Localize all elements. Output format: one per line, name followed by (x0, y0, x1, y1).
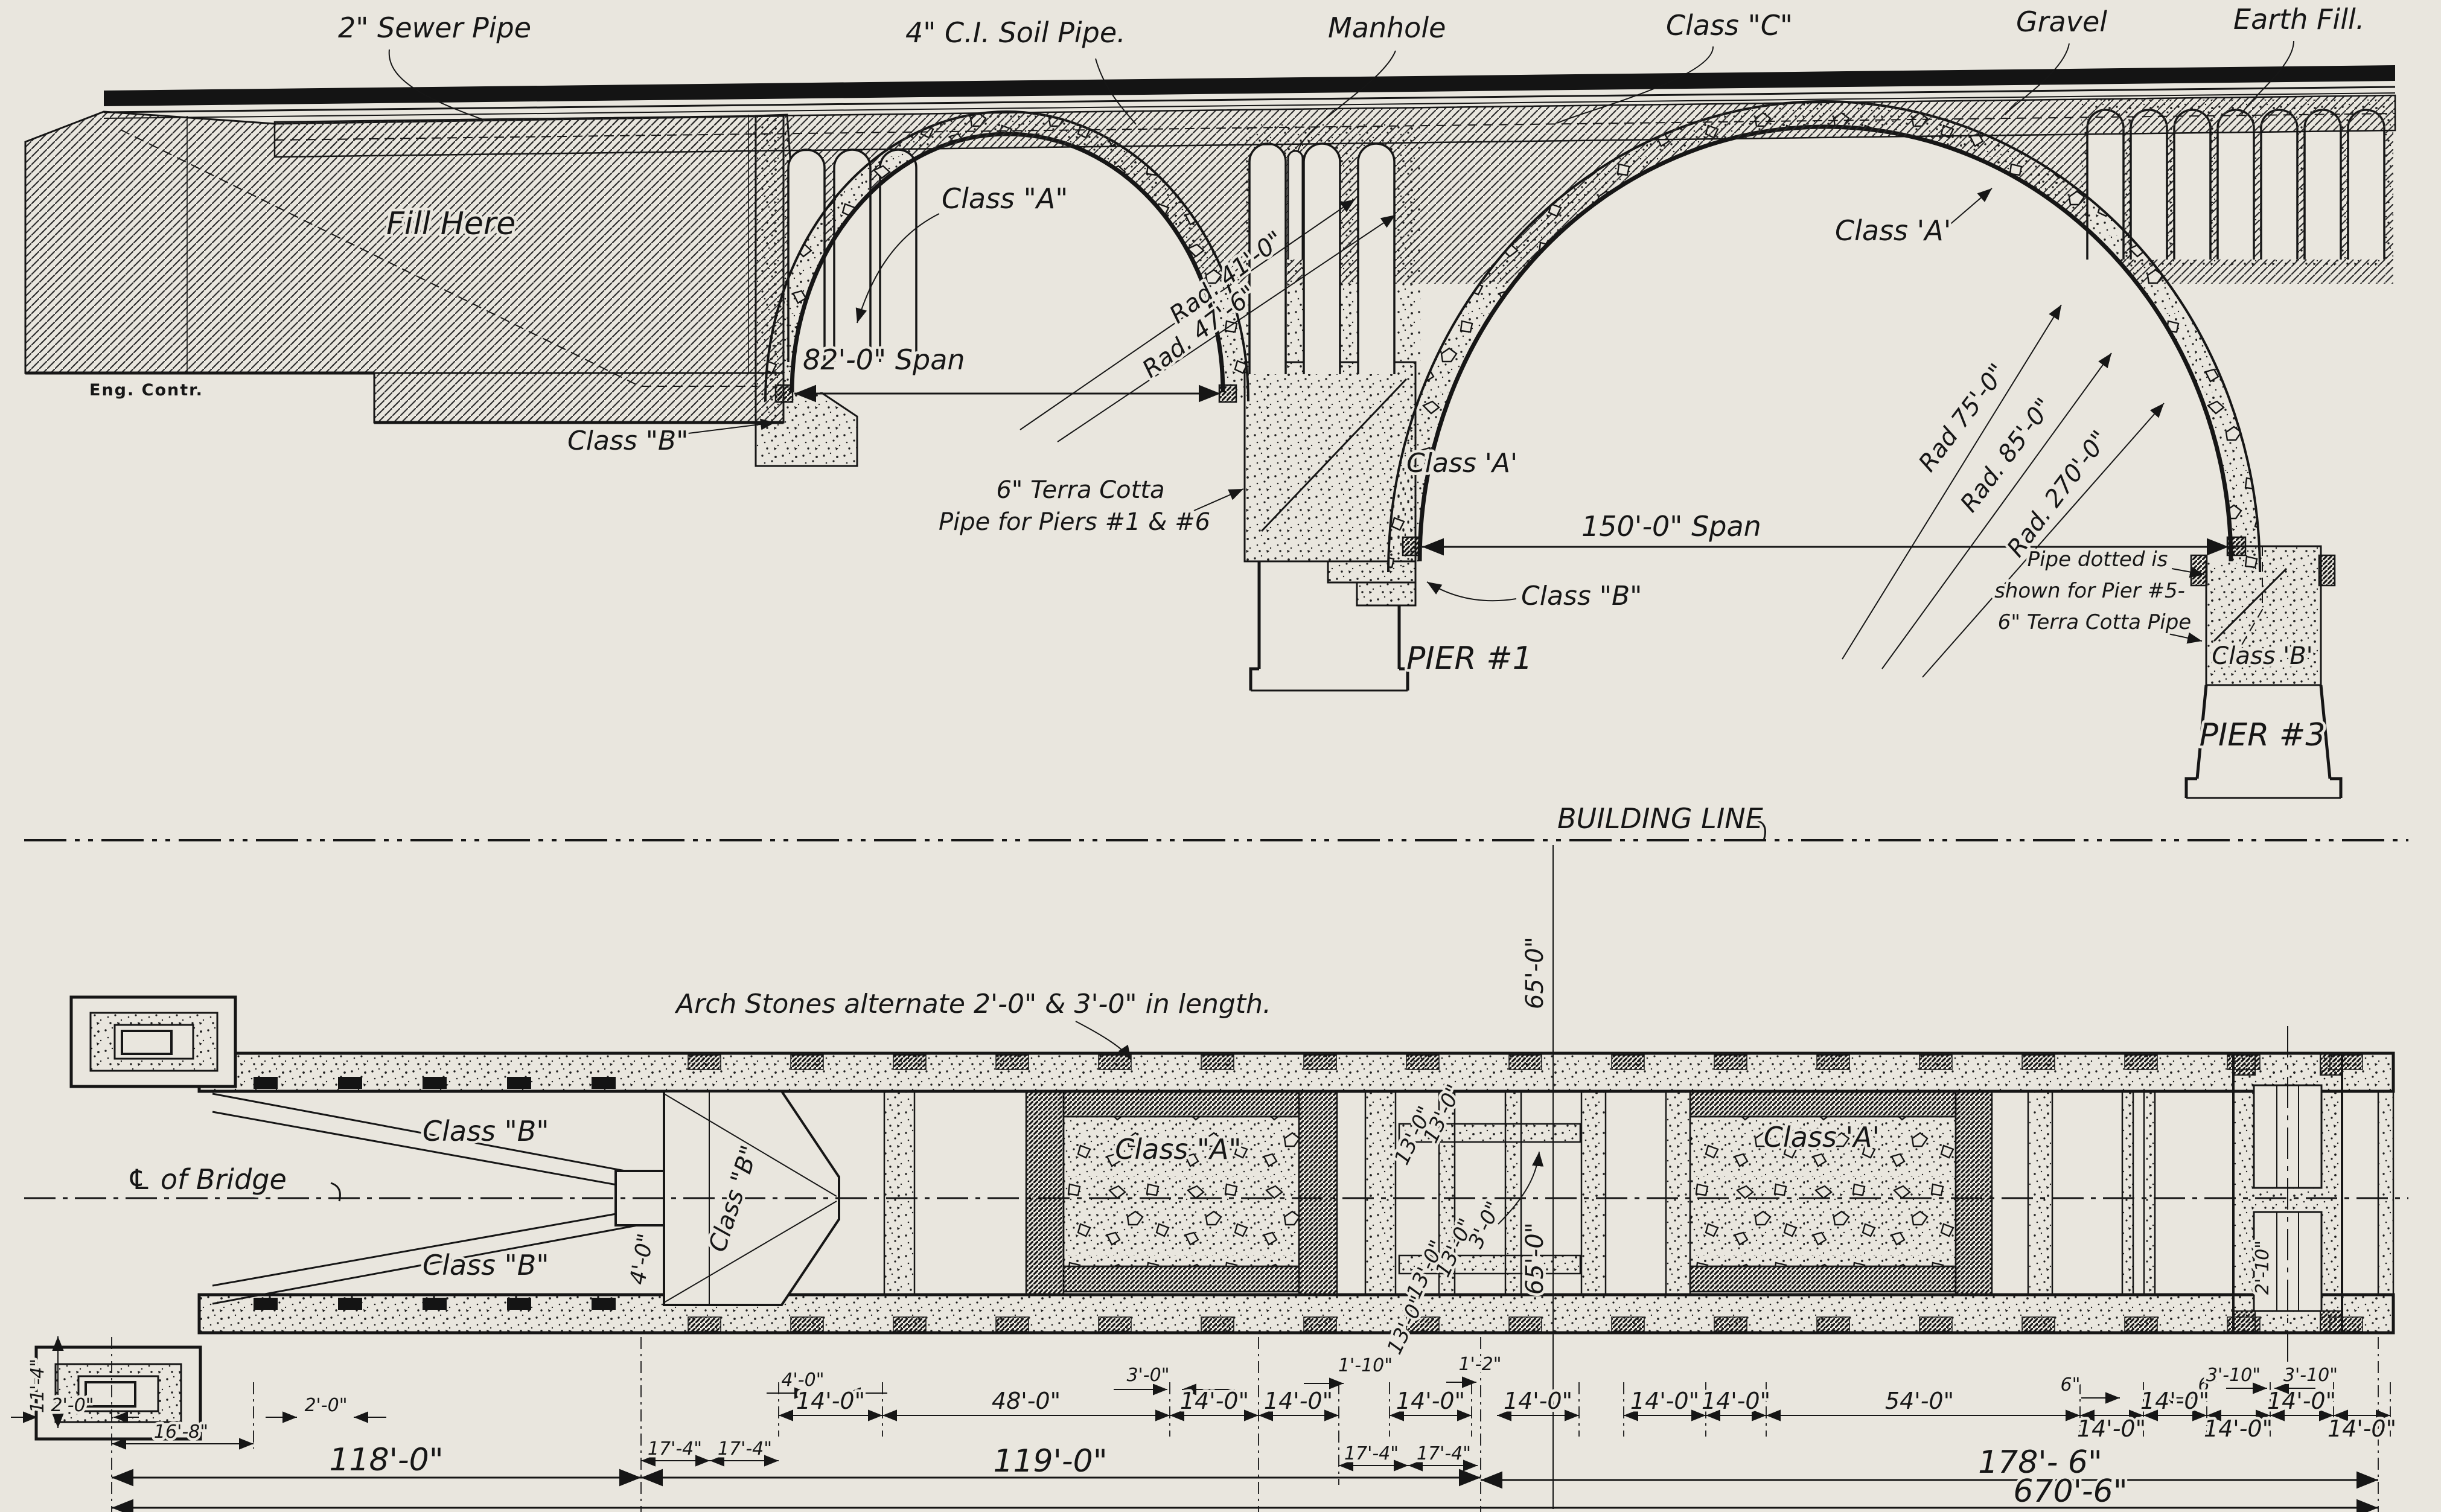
dim-3-10-a: 3'-10" (2206, 1365, 2261, 1386)
dim-14-i: 14'-0" (2140, 1388, 2209, 1414)
label-sewer-pipe: 2" Sewer Pipe (338, 11, 531, 44)
label-class-a-pier1: Class 'A' (1406, 448, 1517, 479)
class-a-block-mid (1064, 1091, 1299, 1292)
dim-6-a: 6" (2061, 1374, 2081, 1396)
dim-14-h: 14'-0" (2077, 1415, 2146, 1442)
dim-14-k: 14'-0" (2267, 1388, 2336, 1414)
dim-14-d: 14'-0" (1396, 1388, 1465, 1414)
dim-17-4-a: 17'-4" (648, 1438, 702, 1459)
plan-pier-hollow (2233, 1026, 2342, 1364)
dim-14-a: 14'-0" (796, 1388, 865, 1414)
dim-11-4: 11'-4" (27, 1359, 48, 1413)
bridge-working-drawing: 2" Sewer Pipe 4" C.I. Soil Pipe. Manhole… (0, 0, 2441, 1512)
label-soil-pipe: 4" C.I. Soil Pipe. (905, 16, 1126, 49)
label-class-b-abutment: Class "B" (567, 426, 688, 456)
drawing-sheet: 2" Sewer Pipe 4" C.I. Soil Pipe. Manhole… (0, 0, 2441, 1512)
label-class-b-pier1: Class "B" (1521, 581, 1642, 611)
label-pipe-dotted-2: shown for Pier #5- (1994, 579, 2185, 603)
label-class-a-mid: Class "A" (1115, 1133, 1241, 1166)
dim-54: 54'-0" (1885, 1388, 1954, 1414)
dim-17-4-c: 17'-4" (1344, 1443, 1399, 1464)
label-pier-1: PIER #1 (1406, 640, 1533, 677)
label-eng-contr: Eng. Contr. (89, 381, 203, 400)
dim-16-8: 16'-8" (154, 1421, 208, 1443)
dim-2-0-a: 2'-0" (51, 1395, 94, 1416)
label-class-a-arch2: Class 'A' (1835, 214, 1951, 247)
label-building-line: BUILDING LINE (1557, 802, 1763, 835)
dim-1-10: 1'-10" (1338, 1355, 1393, 1376)
label-cl-of-bridge: ℄ of Bridge (127, 1163, 287, 1196)
label-class-b-upper: Class "B" (423, 1115, 549, 1147)
label-gravel: Gravel (2016, 5, 2107, 38)
dim-118: 118'-0" (329, 1442, 443, 1478)
abutment-earth-fill-step (374, 373, 783, 423)
label-pier-3: PIER #3 (2200, 717, 2326, 753)
label-pipe-dotted-3: 6" Terra Cotta Pipe (1998, 610, 2191, 634)
abutment-footing-upper (71, 997, 235, 1086)
dim-670-6: 670'-6" (2013, 1473, 2127, 1510)
label-65-upper: 65'-0" (1521, 937, 1549, 1009)
dim-48: 48'-0" (992, 1388, 1061, 1414)
dim-1-2: 1'-2" (1458, 1354, 1501, 1375)
label-2-10: 2'-10" (2252, 1240, 2273, 1295)
pier1-classb-step2 (1357, 582, 1415, 605)
label-pipe-dotted-1: Pipe dotted is (2028, 547, 2168, 572)
label-span-150: 150'-0" Span (1581, 510, 1761, 543)
label-class-a-arch1: Class "A" (942, 182, 1068, 215)
label-terra-cotta-1: 6" Terra Cotta (996, 476, 1164, 504)
dim-14-b: 14'-0" (1180, 1388, 1249, 1414)
dim-14-l: 14'-0" (2328, 1415, 2396, 1442)
dim-14-e: 14'-0" (1504, 1388, 1572, 1414)
label-class-c: Class "C" (1666, 9, 1793, 42)
label-65-lower: 65'-0" (1521, 1222, 1549, 1295)
dim-14-c: 14'-0" (1264, 1388, 1333, 1414)
label-class-a-right: Class 'A' (1764, 1121, 1880, 1153)
label-earth-fill: Earth Fill. (2233, 3, 2364, 36)
dim-14-g: 14'-0" (1702, 1388, 1770, 1414)
dim-3-10-b: 3'-10" (2283, 1365, 2338, 1386)
dim-3-0: 3'-0" (1126, 1365, 1169, 1386)
label-class-b-pier3: Class 'B' (2212, 642, 2312, 670)
dim-14-f: 14'-0" (1630, 1388, 1699, 1414)
dim-14-j: 14'-0" (2204, 1415, 2273, 1442)
dim-17-4-b: 17'-4" (718, 1438, 772, 1459)
dim-17-4-d: 17'-4" (1417, 1443, 1471, 1464)
label-class-b-lower: Class "B" (423, 1249, 549, 1281)
label-arch-stones: Arch Stones alternate 2'-0" & 3'-0" in l… (674, 989, 1271, 1019)
label-fill-here: Fill Here (386, 206, 515, 242)
label-terra-cotta-2: Pipe for Piers #1 & #6 (939, 508, 1210, 536)
label-span-82: 82'-0" Span (803, 343, 965, 376)
dim-119: 119'-0" (993, 1443, 1107, 1479)
dim-2-0-b: 2'-0" (304, 1395, 347, 1416)
label-manhole: Manhole (1328, 11, 1446, 44)
